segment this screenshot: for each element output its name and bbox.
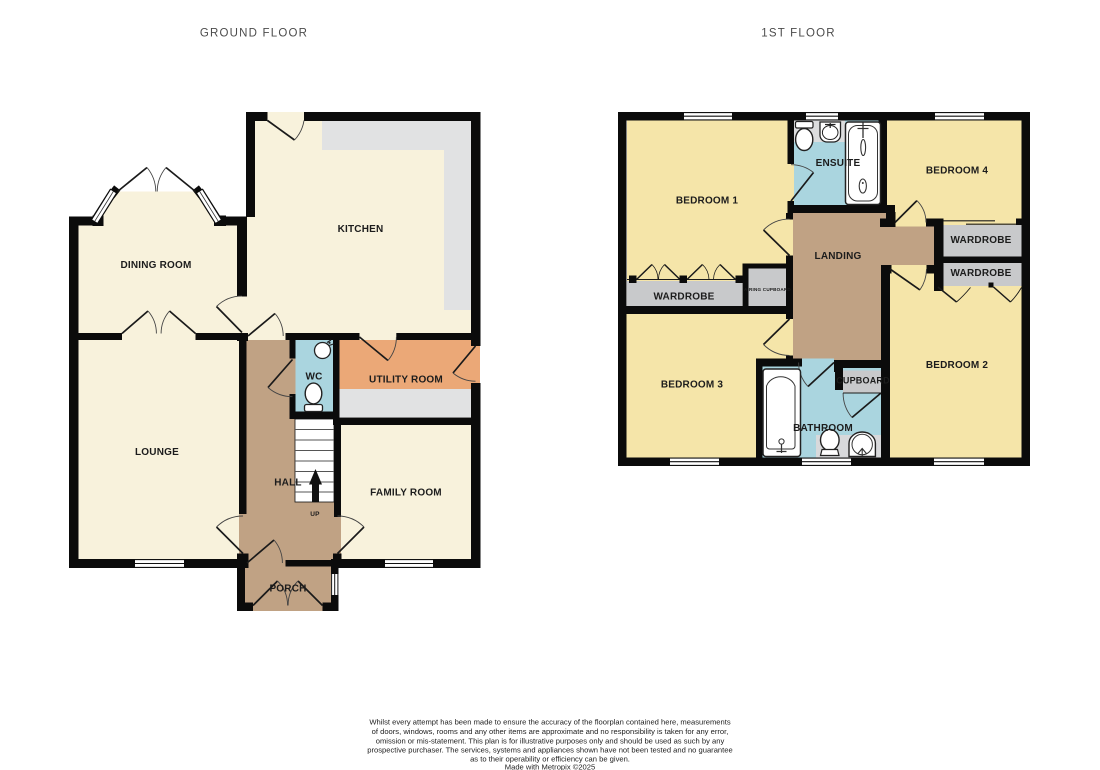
svg-text:ENSUITE: ENSUITE xyxy=(816,158,861,169)
svg-text:WARDROBE: WARDROBE xyxy=(653,292,714,303)
svg-text:WARDROBE: WARDROBE xyxy=(950,268,1011,279)
svg-text:prospective purchaser. The ser: prospective purchaser. The services, sys… xyxy=(367,745,732,754)
svg-text:Made with Metropix ©2025: Made with Metropix ©2025 xyxy=(505,763,595,770)
svg-text:UP: UP xyxy=(310,511,320,518)
svg-text:GROUND FLOOR: GROUND FLOOR xyxy=(200,27,308,39)
svg-text:CUPBOARD: CUPBOARD xyxy=(836,376,890,386)
svg-text:LOUNGE: LOUNGE xyxy=(135,447,179,458)
svg-text:AIRING CUPBOARD: AIRING CUPBOARD xyxy=(744,287,791,292)
svg-text:BEDROOM 4: BEDROOM 4 xyxy=(926,166,989,177)
svg-text:WC: WC xyxy=(305,372,322,383)
svg-text:FAMILY ROOM: FAMILY ROOM xyxy=(370,488,442,499)
svg-text:PORCH: PORCH xyxy=(269,584,306,595)
svg-text:of doors, windows, rooms and a: of doors, windows, rooms and any other i… xyxy=(372,727,729,736)
svg-text:omission or mis-statement. Thi: omission or mis-statement. This plan is … xyxy=(376,736,725,745)
svg-text:1ST FLOOR: 1ST FLOOR xyxy=(761,27,836,39)
svg-text:HALL: HALL xyxy=(274,478,301,489)
svg-text:BEDROOM 3: BEDROOM 3 xyxy=(661,380,724,391)
svg-text:WARDROBE: WARDROBE xyxy=(950,235,1011,246)
svg-text:DINING ROOM: DINING ROOM xyxy=(120,260,191,271)
svg-text:BEDROOM 2: BEDROOM 2 xyxy=(926,360,989,371)
svg-text:BEDROOM 1: BEDROOM 1 xyxy=(676,196,739,207)
svg-text:LANDING: LANDING xyxy=(815,251,862,262)
svg-text:UTILITY ROOM: UTILITY ROOM xyxy=(369,375,443,386)
svg-text:Whilst every attempt has been: Whilst every attempt has been made to en… xyxy=(369,718,731,727)
svg-text:BATHROOM: BATHROOM xyxy=(793,423,853,434)
svg-text:KITCHEN: KITCHEN xyxy=(338,224,384,235)
